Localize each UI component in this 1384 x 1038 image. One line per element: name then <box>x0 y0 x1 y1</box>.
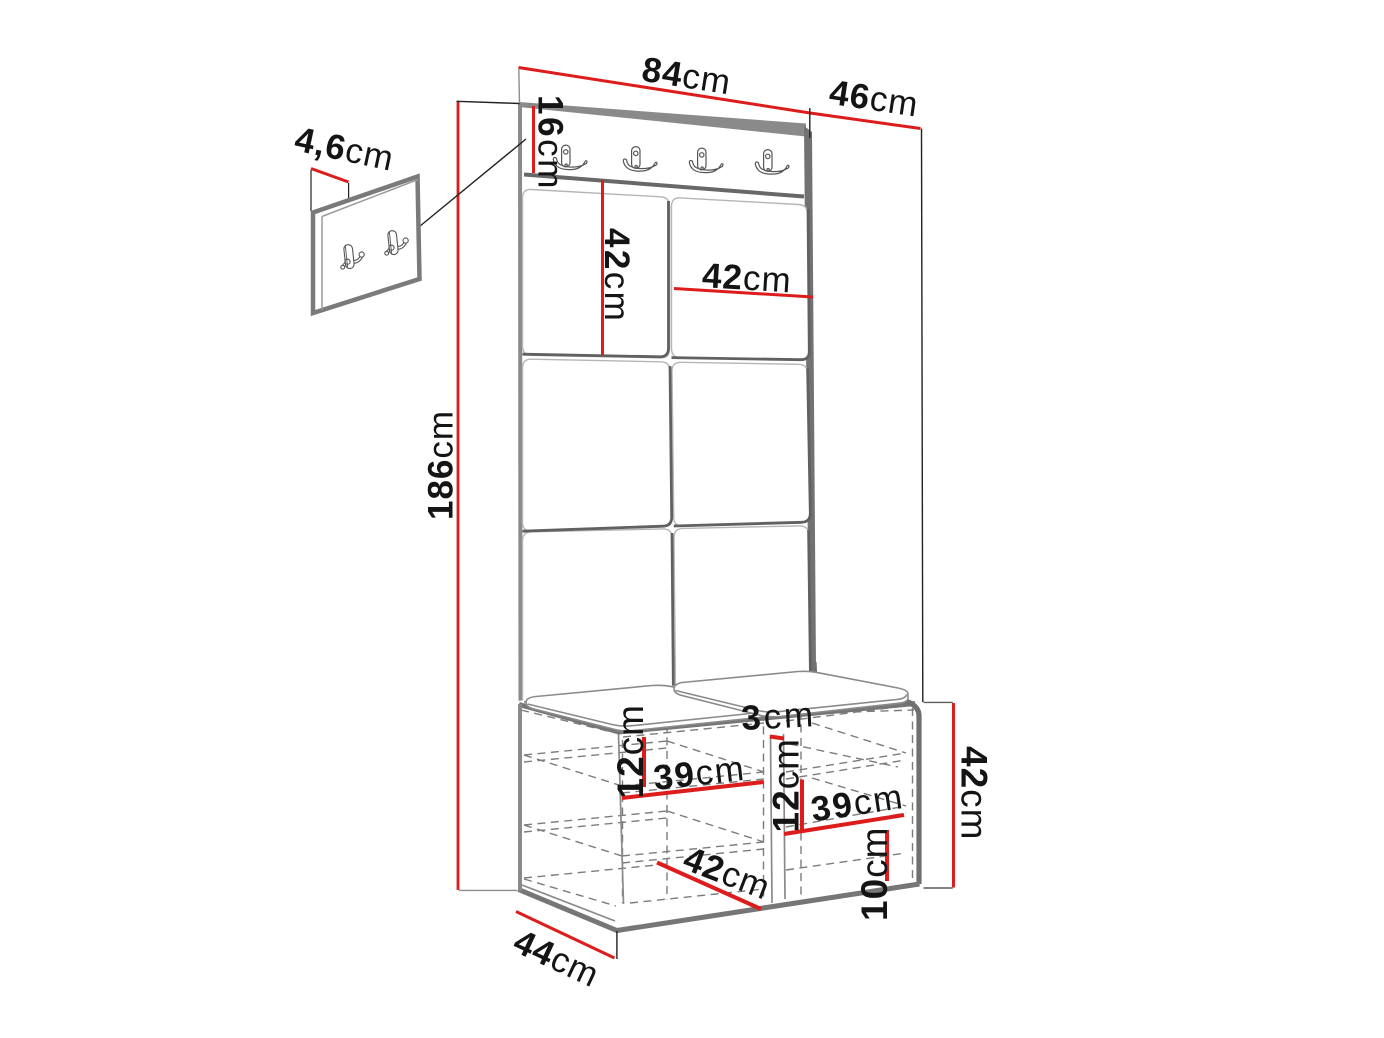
svg-text:186cm: 186cm <box>422 410 461 520</box>
svg-text:42cm: 42cm <box>597 228 636 323</box>
svg-text:3cm: 3cm <box>740 695 816 738</box>
svg-text:10cm: 10cm <box>854 827 895 921</box>
svg-text:12cm: 12cm <box>610 704 651 798</box>
svg-text:42cm: 42cm <box>954 746 995 840</box>
svg-text:16cm: 16cm <box>531 95 570 191</box>
svg-text:12cm: 12cm <box>766 738 807 832</box>
svg-text:42cm: 42cm <box>701 256 793 300</box>
